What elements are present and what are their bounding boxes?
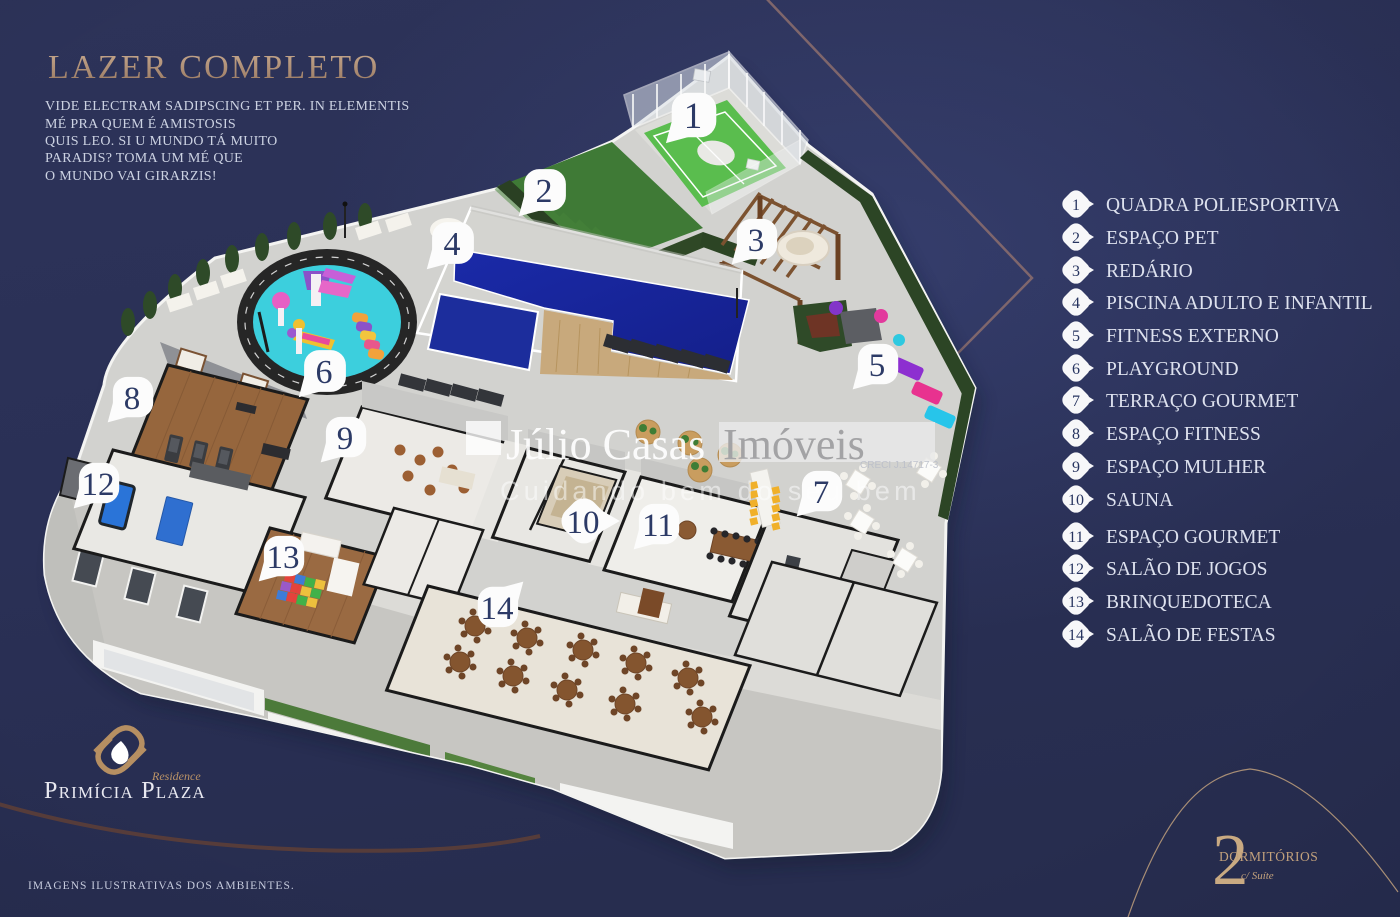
svg-text:SAUNA: SAUNA: [1106, 490, 1173, 511]
svg-text:5: 5: [869, 348, 886, 384]
svg-text:2: 2: [536, 173, 553, 210]
svg-text:ESPAÇO PET: ESPAÇO PET: [1106, 228, 1219, 249]
svg-text:8: 8: [124, 381, 141, 417]
svg-text:Residence: Residence: [151, 769, 201, 783]
svg-text:13: 13: [267, 540, 300, 576]
svg-text:CRECI J.14717-3: CRECI J.14717-3: [860, 460, 939, 471]
svg-text:PISCINA ADULTO E INFANTIL: PISCINA ADULTO E INFANTIL: [1106, 293, 1373, 314]
svg-text:5: 5: [1072, 328, 1080, 345]
svg-text:PARADIS? TOMA UM MÉ QUE: PARADIS? TOMA UM MÉ QUE: [45, 149, 243, 166]
svg-text:9: 9: [1072, 459, 1080, 476]
svg-text:VIDE ELECTRAM SADIPSCING ET PE: VIDE ELECTRAM SADIPSCING ET PER. IN ELEM…: [45, 99, 409, 114]
svg-text:Cuidando bem do seu bem: Cuidando bem do seu bem: [500, 476, 921, 506]
svg-text:3: 3: [748, 223, 765, 259]
svg-text:6: 6: [316, 354, 333, 391]
svg-text:14: 14: [1068, 627, 1084, 644]
svg-text:FITNESS EXTERNO: FITNESS EXTERNO: [1106, 326, 1279, 347]
svg-text:3: 3: [1072, 263, 1080, 280]
svg-text:7: 7: [1072, 393, 1080, 410]
svg-text:SALÃO DE JOGOS: SALÃO DE JOGOS: [1106, 558, 1267, 580]
svg-text:DORMITÓRIOS: DORMITÓRIOS: [1219, 849, 1318, 864]
svg-text:QUADRA POLIESPORTIVA: QUADRA POLIESPORTIVA: [1106, 195, 1340, 216]
svg-text:MÉ PRA QUEM É AMISTOSIS: MÉ PRA QUEM É AMISTOSIS: [45, 115, 236, 132]
svg-text:12: 12: [82, 467, 115, 503]
svg-text:LAZER COMPLETO: LAZER COMPLETO: [48, 49, 379, 86]
svg-text:ESPAÇO GOURMET: ESPAÇO GOURMET: [1106, 527, 1280, 548]
svg-text:11: 11: [642, 508, 674, 544]
svg-text:Imóveis: Imóveis: [723, 420, 865, 469]
svg-text:ESPAÇO FITNESS: ESPAÇO FITNESS: [1106, 424, 1261, 445]
svg-text:4: 4: [1072, 295, 1080, 312]
svg-text:IMAGENS ILUSTRATIVAS DOS AMBIE: IMAGENS ILUSTRATIVAS DOS AMBIENTES.: [28, 880, 295, 892]
svg-text:4: 4: [444, 226, 461, 263]
svg-text:SALÃO DE FESTAS: SALÃO DE FESTAS: [1106, 624, 1276, 646]
svg-text:14: 14: [481, 591, 514, 627]
svg-text:ESPAÇO MULHER: ESPAÇO MULHER: [1106, 457, 1266, 478]
svg-text:10: 10: [1068, 492, 1084, 509]
svg-text:Júlio Casas: Júlio Casas: [506, 420, 705, 469]
svg-text:2: 2: [1072, 230, 1080, 247]
svg-text:12: 12: [1068, 561, 1084, 578]
svg-text:1: 1: [1072, 197, 1080, 214]
svg-text:QUIS LEO. SI U MUNDO TÁ MUITO: QUIS LEO. SI U MUNDO TÁ MUITO: [45, 132, 278, 149]
svg-text:BRINQUEDOTECA: BRINQUEDOTECA: [1106, 592, 1272, 613]
svg-text:9: 9: [337, 421, 354, 457]
svg-text:11: 11: [1068, 529, 1083, 546]
svg-text:PLAYGROUND: PLAYGROUND: [1106, 359, 1239, 380]
svg-text:10: 10: [567, 505, 600, 541]
svg-text:6: 6: [1072, 361, 1080, 378]
svg-text:13: 13: [1068, 594, 1084, 611]
svg-text:TERRAÇO GOURMET: TERRAÇO GOURMET: [1106, 391, 1298, 412]
svg-text:8: 8: [1072, 426, 1080, 443]
svg-text:O MUNDO VAI GIRARZIS!: O MUNDO VAI GIRARZIS!: [45, 169, 217, 184]
svg-text:1: 1: [684, 96, 703, 137]
svg-text:c/ Suíte: c/ Suíte: [1241, 870, 1274, 882]
svg-text:REDÁRIO: REDÁRIO: [1106, 260, 1193, 282]
